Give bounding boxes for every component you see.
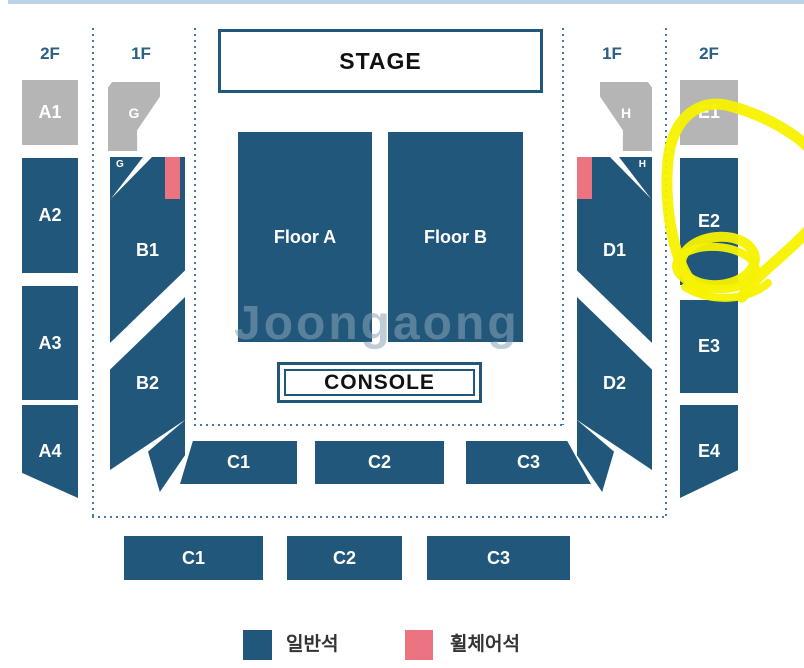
section-c1-lower[interactable]: C1 [124,536,263,580]
section-g[interactable]: G [108,82,160,151]
seat-map: 2F 1F 1F 2F STAGE A1 A2 A3 A4 G G B1 B2 … [0,0,804,668]
dotted-divider-right-outer [665,28,667,517]
section-c2-lower[interactable]: C2 [287,536,402,580]
section-e4[interactable]: E4 [680,405,738,498]
watermark: Joongaong [234,296,754,352]
section-e1[interactable]: E1 [680,80,738,145]
legend-general-label: 일반석 [286,630,338,660]
section-e3[interactable]: E3 [680,300,738,393]
dotted-divider-left-outer [92,28,94,517]
legend-wheelchair-label: 휠체어석 [450,630,520,660]
wheelchair-area-d1[interactable] [577,157,592,199]
section-a2[interactable]: A2 [22,158,78,273]
section-a3[interactable]: A3 [22,286,78,400]
section-a1[interactable]: A1 [22,80,78,145]
dotted-divider-right-inner [562,28,564,425]
console-label: CONSOLE [324,371,435,395]
section-e2[interactable]: E2 [680,158,738,285]
top-strip [8,0,804,4]
section-c3-upper[interactable]: C3 [466,441,591,484]
floor-label-right-2f: 2F [687,44,731,64]
floor-label-right-1f: 1F [590,44,634,64]
dotted-divider-left-inner [194,28,196,425]
stage-box: STAGE [218,29,543,93]
section-c3-lower[interactable]: C3 [427,536,570,580]
dotted-divider-1f-bottom [92,516,667,518]
stage-label: STAGE [339,48,422,75]
floor-label-left-2f: 2F [28,44,72,64]
dotted-divider-floor-bottom [194,424,564,426]
section-c1-upper[interactable]: C1 [180,441,297,484]
section-h[interactable]: H [600,82,652,151]
legend-general-swatch [243,630,272,660]
wheelchair-area-b1[interactable] [165,157,180,199]
legend-wheelchair-swatch [405,630,433,660]
section-a4[interactable]: A4 [22,405,78,498]
floor-label-left-1f: 1F [119,44,163,64]
console-box: CONSOLE [277,362,482,403]
section-c2-upper[interactable]: C2 [315,441,444,484]
